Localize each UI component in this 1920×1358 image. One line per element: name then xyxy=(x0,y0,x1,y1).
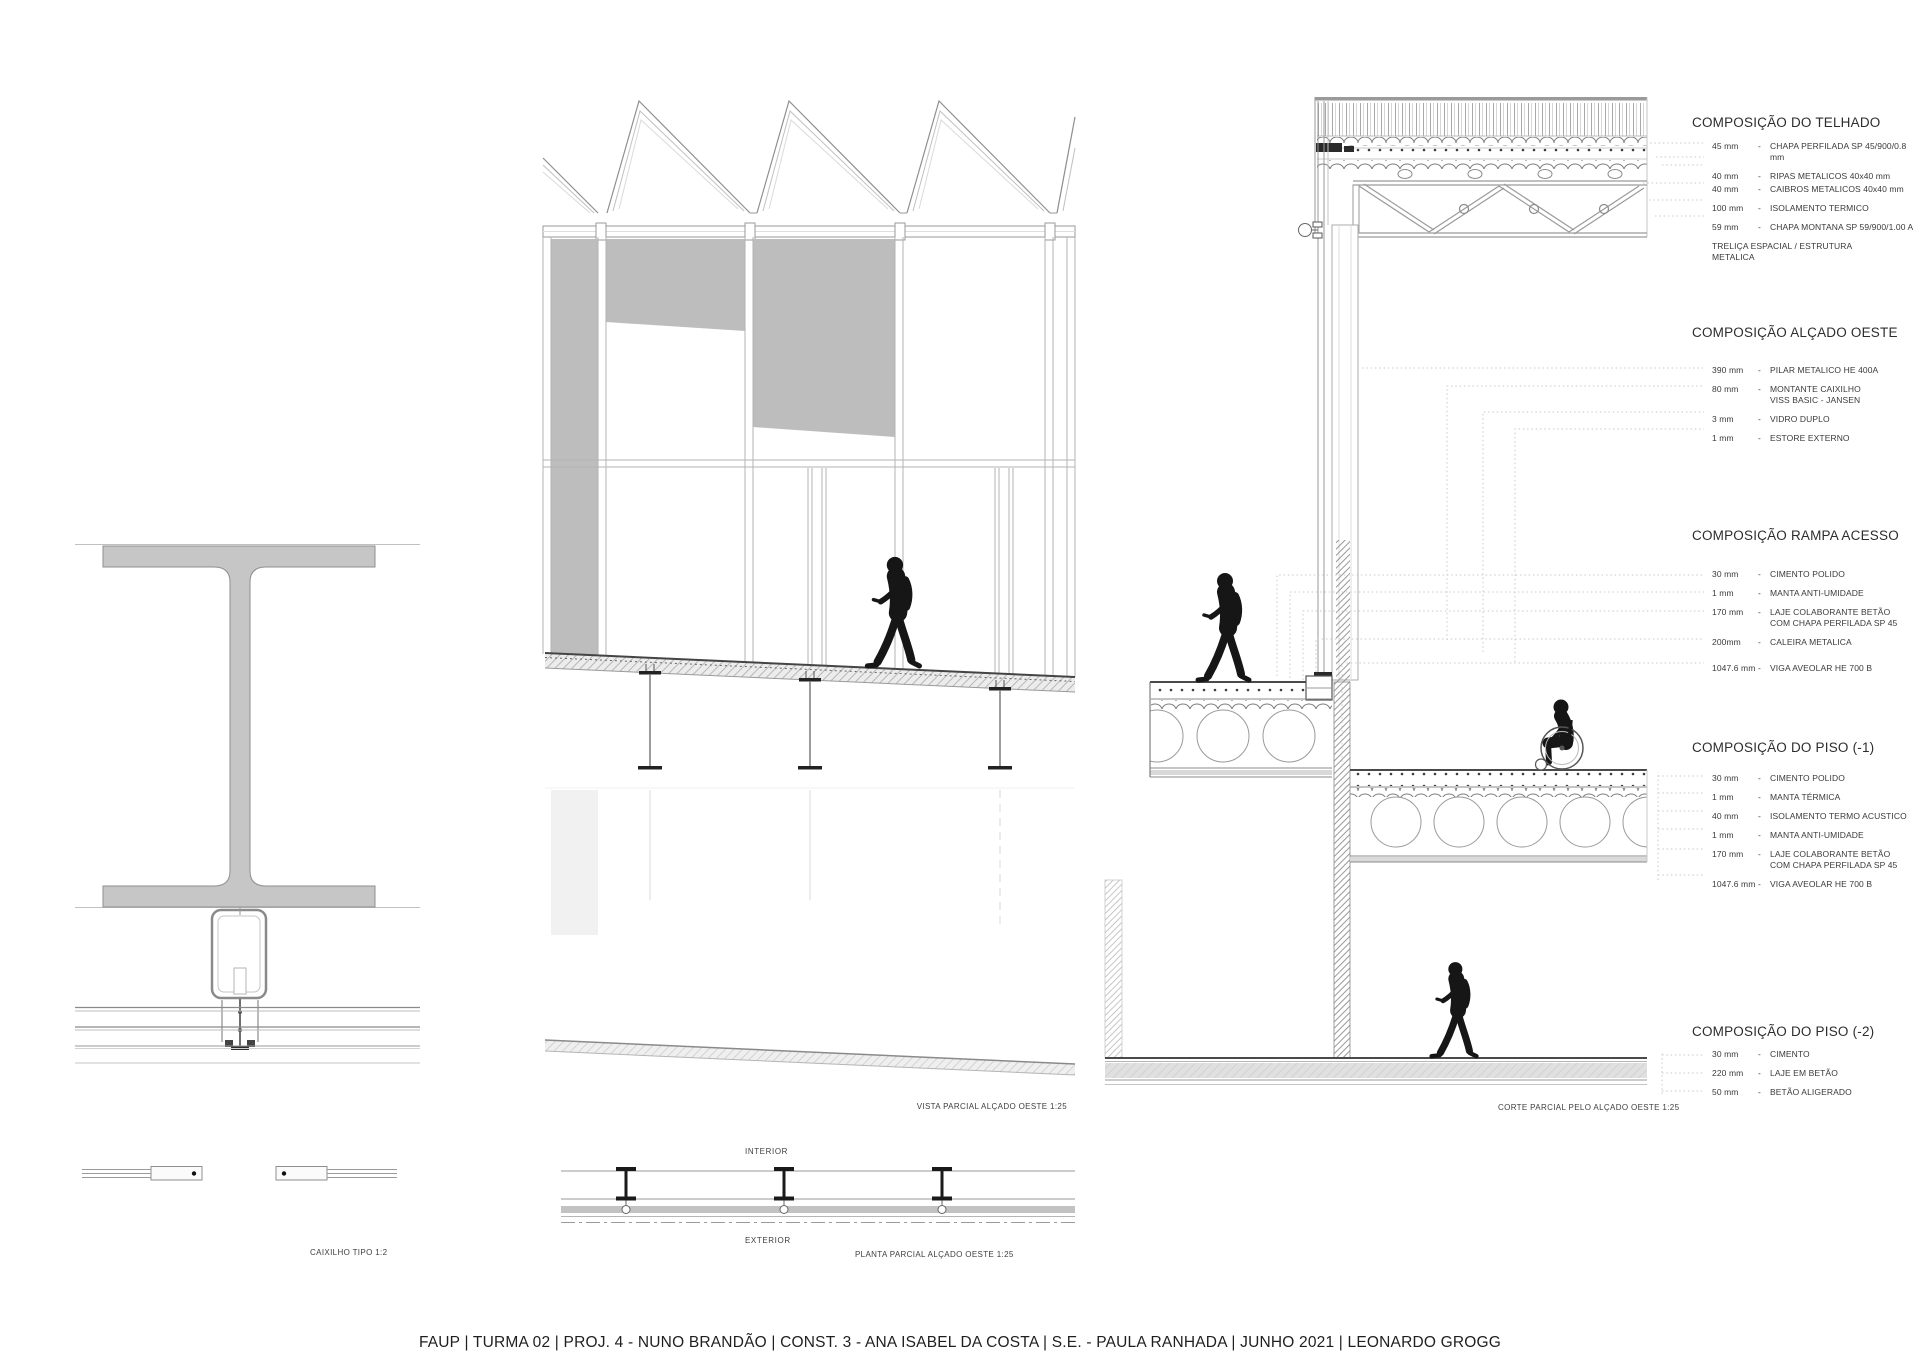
steel-ibeam xyxy=(103,546,375,907)
glazing-clamp xyxy=(222,999,258,1050)
sheet-title: FAUP | TURMA 02 | PROJ. 4 - NUNO BRANDÃO… xyxy=(0,1334,1920,1352)
sawtooth-roof xyxy=(543,101,1075,213)
technical-drawing xyxy=(0,0,1920,1358)
pedestrian-figure-section-upper xyxy=(1198,573,1249,680)
caption-planta: PLANTA PARCIAL ALÇADO OESTE 1:25 xyxy=(855,1250,998,1259)
drawing-sheet: CAIXILHO TIPO 1:2 VISTA PARCIAL ALÇADO O… xyxy=(0,0,1920,1358)
label-interior: INTERIOR xyxy=(745,1147,788,1156)
west-elevation-drawing xyxy=(543,101,1075,1075)
caption-caixilho: CAIXILHO TIPO 1:2 xyxy=(310,1248,387,1257)
caption-vista: VISTA PARCIAL ALÇADO OESTE 1:25 xyxy=(905,1102,1067,1111)
glazing-plan-pieces xyxy=(82,1167,397,1181)
section-facade xyxy=(1299,101,1359,700)
roof-truss xyxy=(1353,181,1647,237)
facade-shades xyxy=(551,239,895,660)
floor-minus2 xyxy=(1105,880,1647,1085)
lower-ramp xyxy=(545,1040,1075,1075)
mullion-detail-drawing xyxy=(75,545,420,1181)
reflection-ghost xyxy=(545,788,1075,935)
pedestrian-figure-elevation xyxy=(867,557,919,666)
roof-buildup xyxy=(1315,97,1647,237)
pedestrian-figure-section-lower xyxy=(1432,962,1477,1056)
glazing-lines xyxy=(75,1008,420,1064)
wheelchair-figure xyxy=(1536,700,1584,771)
label-exterior: EXTERIOR xyxy=(745,1236,791,1245)
cut-wall xyxy=(1334,682,1350,1058)
eaves-beam xyxy=(543,223,1075,240)
caption-corte: CORTE PARCIAL PELO ALÇADO OESTE 1:25 xyxy=(1498,1103,1663,1112)
partial-section-drawing xyxy=(1105,97,1704,1094)
floor-minus1-slab xyxy=(1350,770,1673,862)
partial-plan-drawing xyxy=(561,1167,1075,1223)
ramp-slab-section xyxy=(1131,682,1332,777)
